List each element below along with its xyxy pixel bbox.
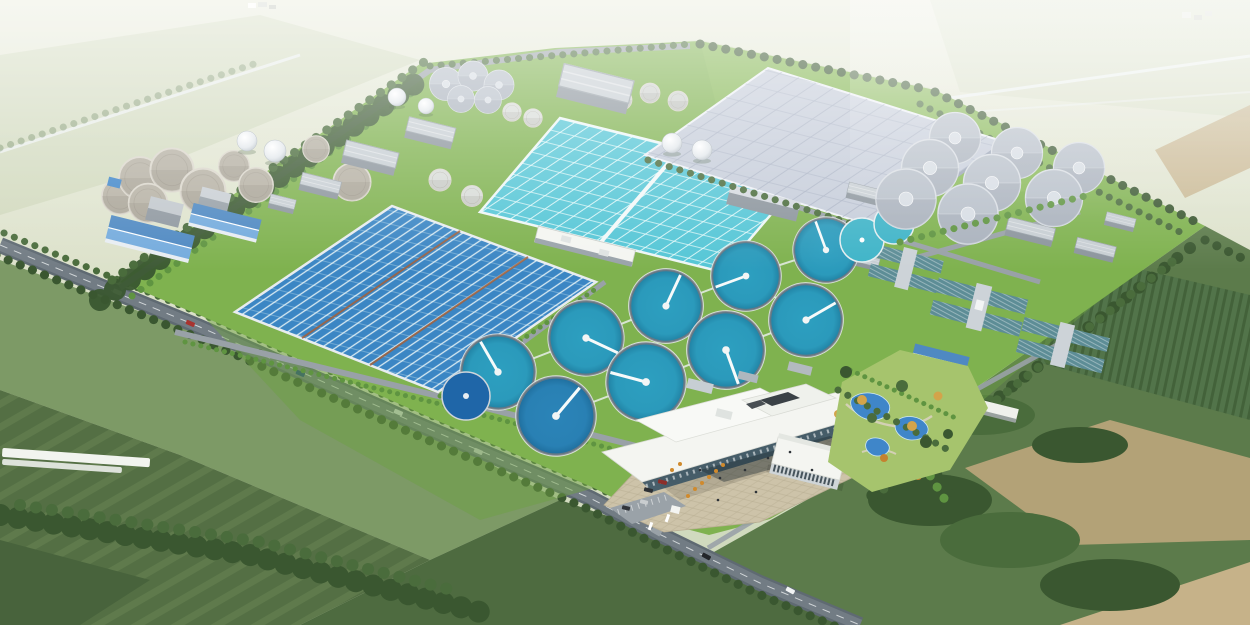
mist-overlay-right: [850, 0, 1250, 220]
treatment-plant-rendering: Aerial rendering of a wastewater treatme…: [0, 0, 1250, 625]
pond-center: [463, 393, 469, 399]
rendering-canvas: Aerial rendering of a wastewater treatme…: [0, 0, 1250, 625]
